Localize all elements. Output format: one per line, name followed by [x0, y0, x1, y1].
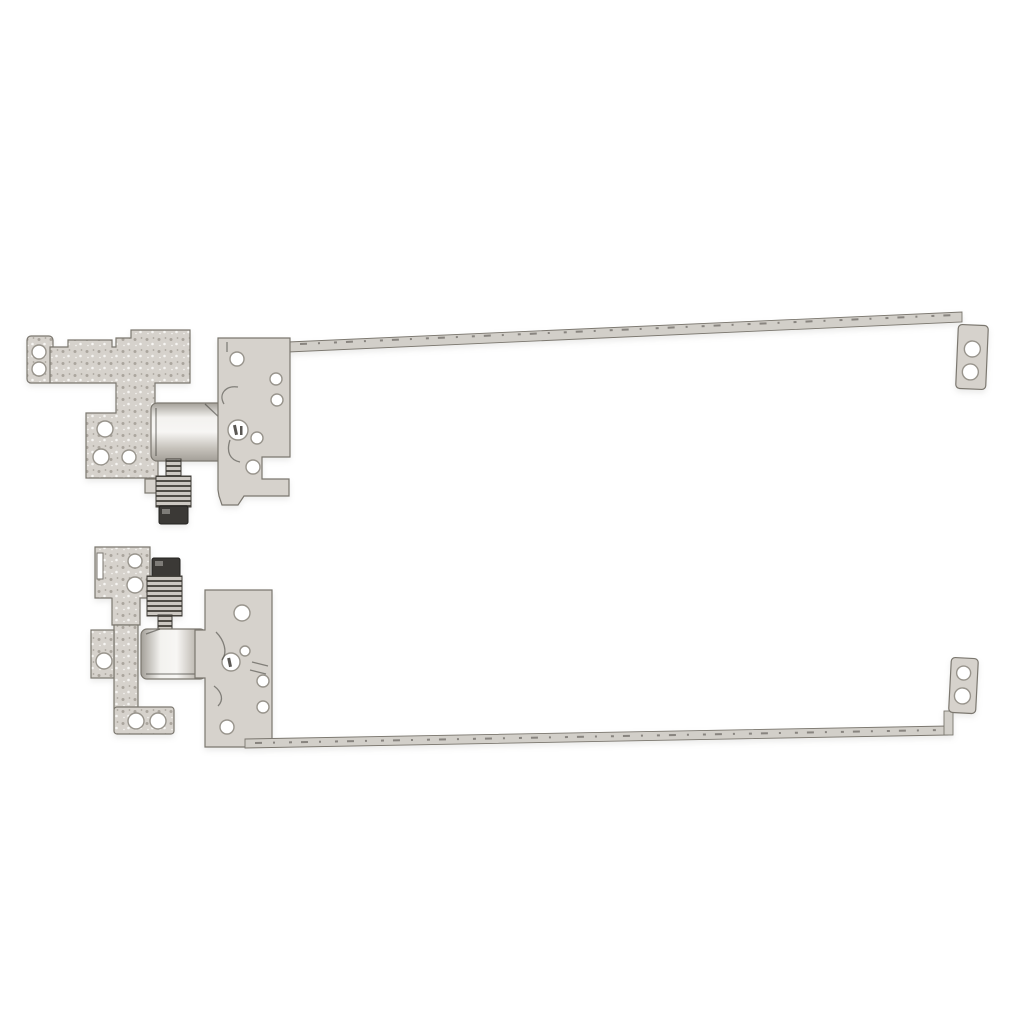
screw-hole [234, 605, 250, 621]
screw-hole [150, 713, 166, 729]
hinge-nut [152, 558, 180, 577]
bracket-strip [114, 625, 138, 709]
screw-hole [257, 675, 269, 687]
axle-shaft [166, 459, 181, 477]
nut-glint [162, 509, 170, 514]
screw-hole [32, 362, 46, 376]
rail-screw-marks [300, 315, 955, 344]
screw-hole [251, 432, 263, 444]
threaded-axle [147, 558, 182, 633]
axle-hole [228, 420, 248, 440]
screw-hole [128, 713, 144, 729]
screw-hole [230, 352, 244, 366]
rail-end-tab [956, 324, 989, 389]
rail-jog [944, 711, 953, 735]
screw-hole [270, 373, 282, 385]
mount-plate-body [218, 338, 290, 505]
screw-hole [956, 666, 971, 681]
lcd-rail [288, 312, 962, 352]
screw-hole [93, 449, 109, 465]
screw-hole [271, 394, 283, 406]
rail-end-tab [949, 657, 979, 713]
hinge-barrel [151, 403, 225, 461]
screw-hole [246, 460, 260, 474]
left-hinge [27, 312, 988, 524]
screw-hole [127, 577, 143, 593]
screw-hole [96, 653, 112, 669]
axle-threads [156, 476, 191, 507]
bracket-slot [97, 553, 103, 579]
right-hinge [91, 547, 978, 748]
screw-hole [32, 345, 46, 359]
screw-hole [257, 701, 269, 713]
hinge-nut [159, 506, 188, 524]
product-photo: Pair of silver-tone laptop LCD screen hi… [0, 0, 1024, 1024]
hinge-mount-plate [195, 590, 272, 747]
screw-hole [962, 364, 979, 381]
nut-glint [155, 561, 163, 566]
screw-hole [240, 646, 250, 656]
screw-hole [97, 421, 113, 437]
screw-hole [128, 554, 142, 568]
screw-hole [220, 720, 234, 734]
screw-hole [122, 450, 136, 464]
axle-threads [147, 576, 182, 616]
screw-hole [954, 688, 971, 705]
axle-side-tab [145, 479, 157, 493]
rail-bar [288, 312, 962, 352]
hinge-pair-photo [0, 0, 1024, 1024]
screw-hole [964, 341, 981, 358]
axle-key-mark [240, 426, 243, 435]
hinge-mount-plate [218, 338, 290, 505]
lcd-rail [245, 711, 953, 748]
